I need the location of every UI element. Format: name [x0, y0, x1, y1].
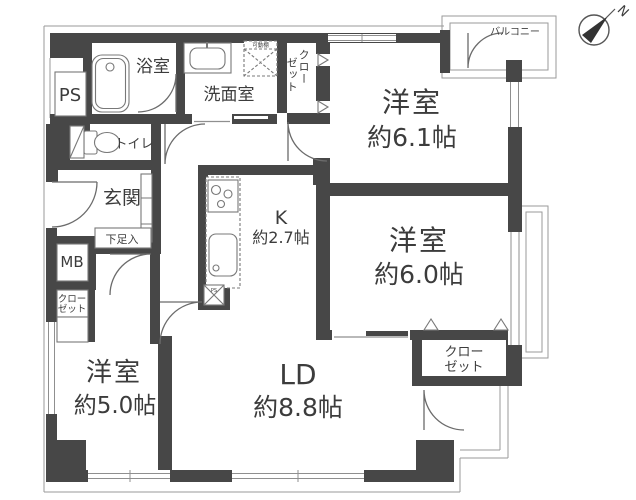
- floorplan-drawing: N 洋室 約6.1帖 洋室 約6.0帖 洋室 約5.0帖 LD 約8.8帖 K …: [0, 0, 636, 500]
- bedroom50-door: [110, 254, 151, 295]
- bathtub-icon: [92, 55, 129, 112]
- stove-icon: [208, 180, 238, 212]
- ps-label: PS: [59, 85, 81, 106]
- compass-needle-icon: [582, 16, 608, 43]
- service-door: [424, 390, 464, 430]
- entrance-door: [52, 182, 97, 227]
- bathroom-label: 浴室: [136, 57, 170, 77]
- bedroom60-closet-line2: ゼット: [444, 360, 483, 375]
- bedroom60-name: 洋室: [389, 224, 449, 257]
- compass-north-label: N: [614, 3, 631, 20]
- balcony-label: バルコニー: [490, 26, 540, 38]
- compass-pointer-line: [606, 9, 615, 18]
- living-dining-name: LD: [279, 358, 316, 391]
- mb-label: MB: [60, 253, 83, 271]
- ps-small-label: PS: [211, 288, 217, 294]
- kitchen-size: 約2.7帖: [252, 228, 309, 247]
- entrance-label: 玄関: [103, 187, 141, 209]
- washbasin-icon: [184, 42, 231, 73]
- bedroom61-size: 約6.1帖: [367, 123, 457, 152]
- shoe-box-label: 下足入: [106, 233, 139, 246]
- movable-shelf-label: 可動棚: [252, 41, 269, 49]
- hall-door: [165, 124, 205, 164]
- bathroom-door: [138, 74, 176, 112]
- kitchen-sink-icon: [209, 234, 237, 276]
- bedroom50-size: 約5.0帖: [74, 393, 157, 419]
- washroom-label: 洗面室: [204, 85, 255, 105]
- floorplan: N 洋室 約6.1帖 洋室 約6.0帖 洋室 約5.0帖 LD 約8.8帖 K …: [0, 0, 636, 500]
- toilet-duct: [70, 126, 84, 158]
- bedroom61-closet-label-col2: ゼット: [285, 57, 297, 93]
- kitchen-name: K: [275, 207, 288, 229]
- bedroom50-name: 洋室: [86, 358, 142, 388]
- hall-closet-line2: ゼット: [58, 303, 87, 315]
- labels: 洋室 約6.1帖 洋室 約6.0帖 洋室 約5.0帖 LD 約8.8帖 K 約2…: [58, 26, 540, 422]
- bedroom61-door: [288, 122, 327, 161]
- toilet-label: トイレ: [114, 137, 153, 152]
- living-dining-size: 約8.8帖: [253, 393, 343, 422]
- closet60-fold-markers: [424, 319, 508, 330]
- bedroom60-size: 約6.0帖: [374, 260, 464, 289]
- bedroom61-closet-label-col1: クロー: [297, 49, 309, 85]
- balcony-door: [468, 33, 503, 68]
- bedroom60-closet-line1: クロー: [444, 345, 483, 360]
- bedroom61-name: 洋室: [382, 86, 442, 119]
- compass: N: [579, 3, 631, 45]
